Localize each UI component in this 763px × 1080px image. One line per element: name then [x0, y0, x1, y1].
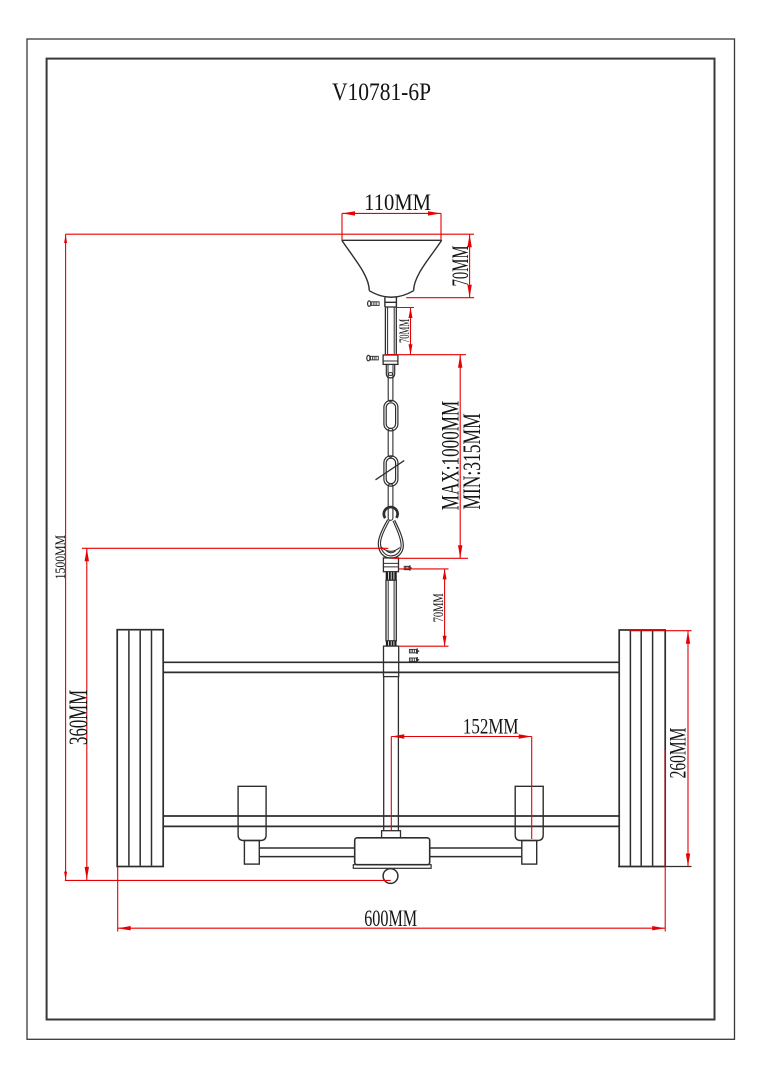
- svg-text:152MM: 152MM: [463, 716, 519, 739]
- svg-text:V10781-6P: V10781-6P: [332, 78, 431, 106]
- svg-text:70MM: 70MM: [449, 246, 474, 287]
- svg-text:MIN:315MM: MIN:315MM: [458, 413, 486, 509]
- svg-text:70MM: 70MM: [430, 593, 446, 622]
- svg-text:600MM: 600MM: [364, 907, 417, 932]
- svg-text:70MM: 70MM: [397, 319, 413, 343]
- svg-text:110MM: 110MM: [364, 189, 431, 216]
- svg-text:360MM: 360MM: [63, 690, 93, 745]
- svg-text:1500MM: 1500MM: [52, 535, 68, 580]
- svg-text:260MM: 260MM: [665, 727, 691, 778]
